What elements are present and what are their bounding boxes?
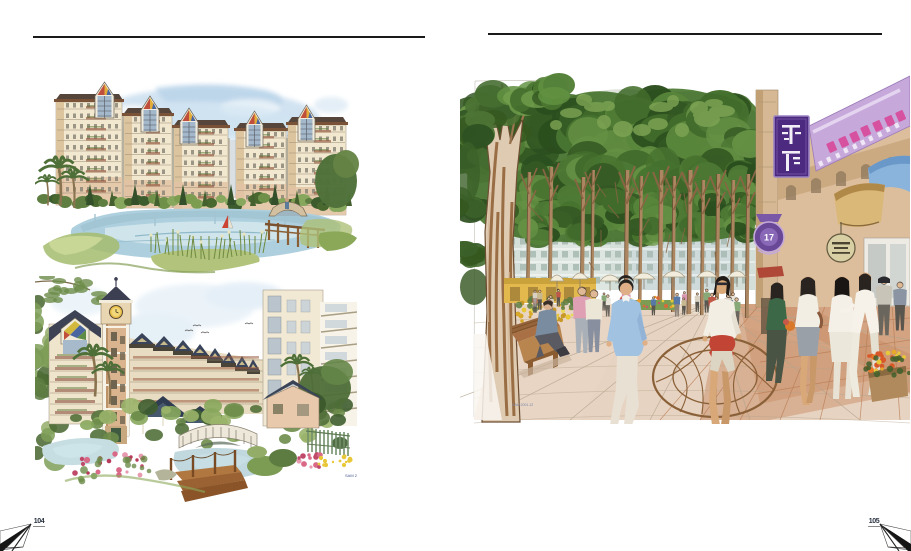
svg-text:SAM 2001.12: SAM 2001.12 bbox=[512, 403, 533, 407]
svg-text:17: 17 bbox=[764, 233, 774, 243]
svg-text:SAM 2001.12: SAM 2001.12 bbox=[345, 473, 357, 478]
